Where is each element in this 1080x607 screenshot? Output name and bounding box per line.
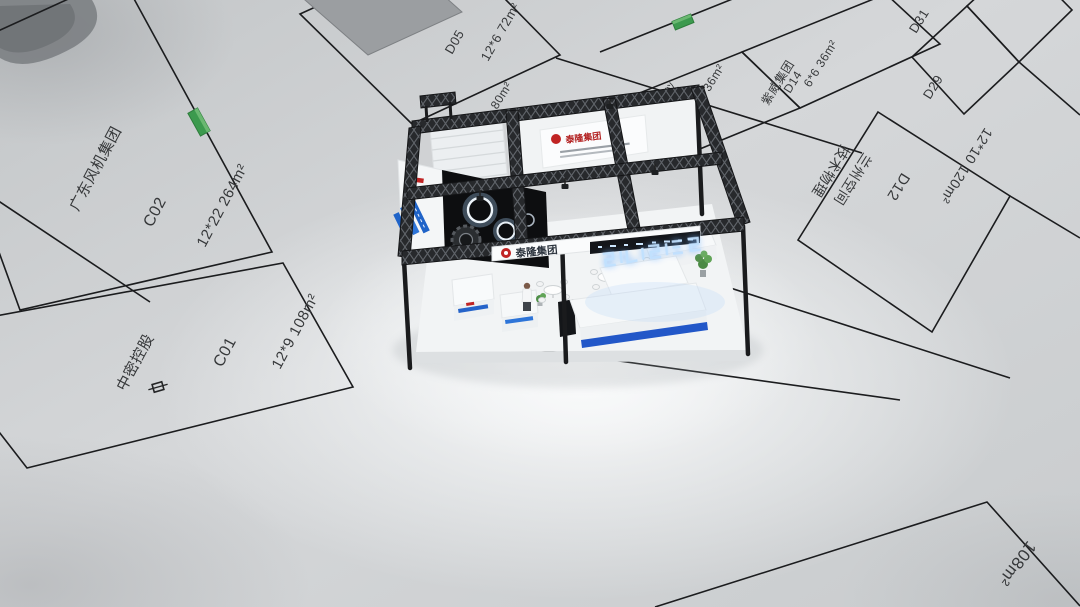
banner-logo-core [504,251,508,255]
truss-stub-riser-2 [450,102,451,119]
booth-base-skirt [416,350,749,363]
brand-logo-icon [551,134,561,144]
blue-floor-wash [585,282,725,322]
exhibition-floorplan-render: 广东风机集团 C02 12*22 264m² 中密控股 C01 12*9 108… [0,0,1080,607]
truss-stub-riser-1 [426,106,427,122]
booth-3d-render: 泰隆集团 [391,85,763,388]
render-canvas: 广东风机集团 C02 12*22 264m² 中密控股 C01 12*9 108… [0,0,1080,607]
